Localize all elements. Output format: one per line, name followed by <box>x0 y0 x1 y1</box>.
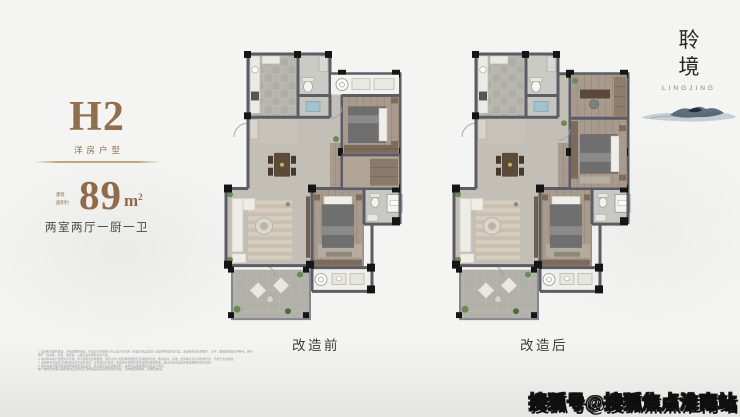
brand-char-top: 聆 <box>646 30 732 51</box>
ink-mountain-icon <box>640 100 738 128</box>
floor-plan-before <box>224 50 408 327</box>
disclaimer-note: 本广告所示内容以政府批文及双方签订的商品房买卖合同约定为准，不构成逐项承诺，请悉… <box>38 367 254 371</box>
caption-after: 改造后 <box>452 334 636 354</box>
marketing-image: H2 洋房户型 建筑 面积约 89 m2 两室两厅一厨一卫 <box>0 0 740 417</box>
unit-type-label: 洋房户型 <box>49 144 145 156</box>
unit-code: H2 <box>59 96 135 138</box>
brand-latin: LINGJING <box>646 85 732 92</box>
area-value: 89 <box>79 178 122 213</box>
area-prefix-top: 建筑 <box>56 193 69 198</box>
brand-logo: 聆 境 LINGJING <box>646 30 732 92</box>
divider-line <box>34 161 161 163</box>
area-unit: m2 <box>124 191 143 211</box>
disclaimer-line: 1. 本资料为要约邀请，不构成要约承诺，买卖双方的权利义务以双方签订的《商品房买… <box>38 350 254 358</box>
disclaimer-paragraph: 1. 本资料为要约邀请，不构成要约承诺，买卖双方的权利义务以双方签订的《商品房买… <box>38 350 254 369</box>
area-prefix-bottom: 面积约 <box>56 201 69 206</box>
floor-plan-after <box>452 50 636 327</box>
area-block: 建筑 面积约 89 m2 <box>56 178 176 213</box>
watermark-text: 搜狐号@搜狐焦点淮南站 <box>528 389 737 415</box>
area-prefix: 建筑 面积约 <box>56 190 77 206</box>
rooms-label: 两室两厅一厨一卫 <box>38 219 156 235</box>
brand-char-bottom: 境 <box>646 57 732 78</box>
